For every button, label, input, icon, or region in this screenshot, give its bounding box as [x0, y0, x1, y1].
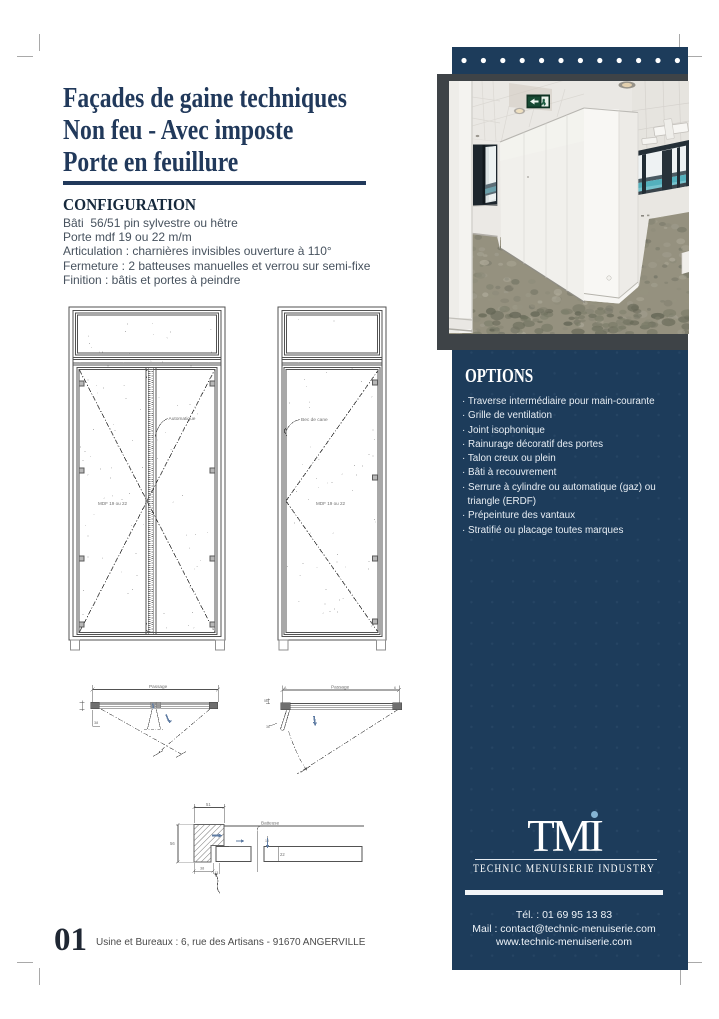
svg-text:51: 51 [206, 802, 211, 807]
svg-text:36: 36 [266, 725, 270, 729]
svg-text:Passage: Passage [331, 685, 350, 690]
svg-text:38: 38 [200, 867, 204, 871]
svg-text:A: A [284, 686, 287, 690]
svg-text:MDF 19 ou 22: MDF 19 ou 22 [316, 501, 346, 506]
svg-text:MDF 19 ou 22: MDF 19 ou 22 [98, 501, 128, 506]
svg-text:56: 56 [264, 699, 268, 703]
svg-text:6: 6 [394, 686, 396, 690]
svg-text:Batteuse: Batteuse [261, 821, 280, 826]
svg-text:38: 38 [94, 721, 98, 725]
svg-text:Passage: Passage [149, 684, 168, 689]
svg-text:22: 22 [280, 852, 285, 857]
svg-text:Automatique: Automatique [169, 416, 196, 422]
svg-text:Bec de cane: Bec de cane [301, 417, 328, 423]
svg-text:56: 56 [170, 841, 175, 846]
